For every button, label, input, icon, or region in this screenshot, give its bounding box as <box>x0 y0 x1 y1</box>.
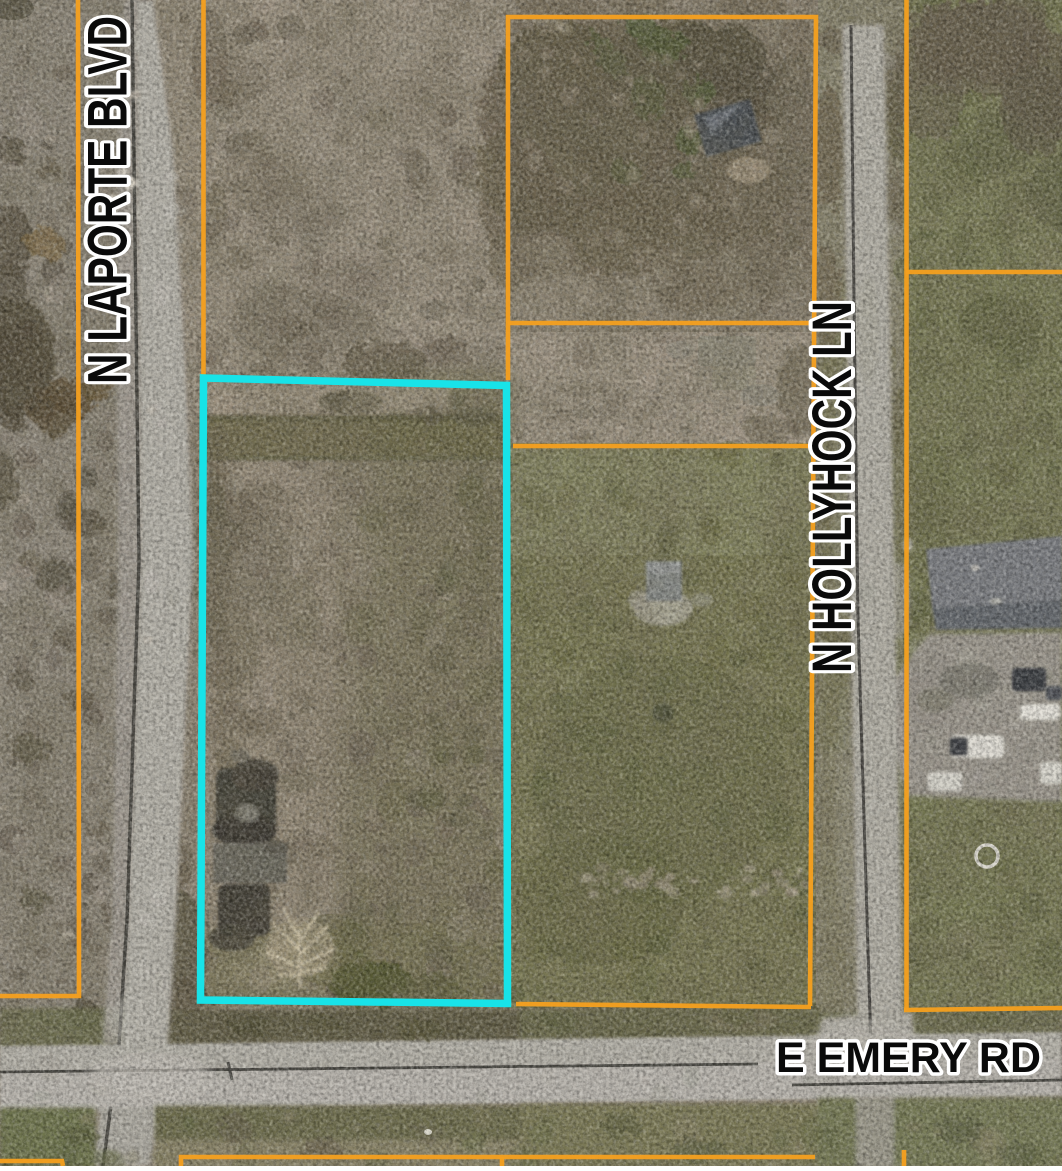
svg-text:E EMERY RD: E EMERY RD <box>776 1034 1041 1082</box>
svg-text:N LAPORTE BLVD: N LAPORTE BLVD <box>76 16 139 384</box>
svg-text:N HOLLYHOCK LN: N HOLLYHOCK LN <box>800 301 863 673</box>
